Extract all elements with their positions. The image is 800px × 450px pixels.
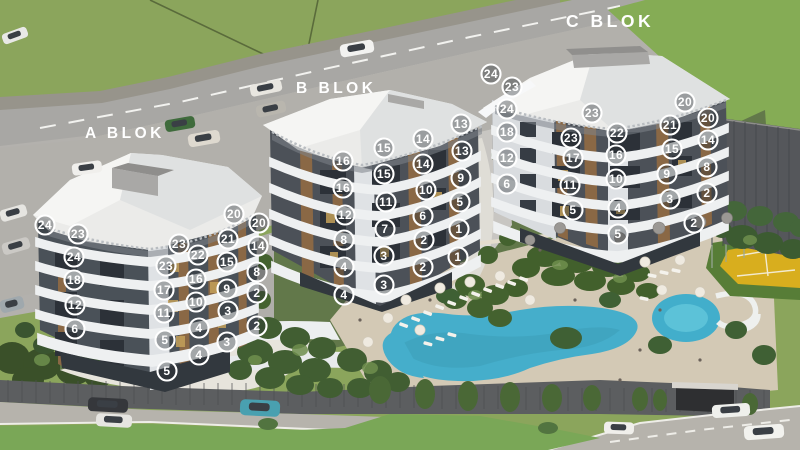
svg-text:15: 15 xyxy=(220,255,234,269)
svg-text:23: 23 xyxy=(585,106,599,120)
svg-text:23: 23 xyxy=(564,131,578,145)
svg-text:16: 16 xyxy=(336,154,350,168)
svg-text:13: 13 xyxy=(455,144,469,158)
svg-text:2: 2 xyxy=(690,216,697,230)
svg-text:17: 17 xyxy=(566,151,580,165)
svg-text:5: 5 xyxy=(614,227,621,241)
svg-text:4: 4 xyxy=(195,348,202,362)
svg-text:4: 4 xyxy=(614,201,621,215)
svg-text:14: 14 xyxy=(251,239,265,253)
svg-text:2: 2 xyxy=(253,319,260,333)
svg-text:18: 18 xyxy=(67,273,81,287)
svg-text:15: 15 xyxy=(665,142,679,156)
svg-text:13: 13 xyxy=(454,117,468,131)
svg-text:9: 9 xyxy=(663,167,670,181)
svg-text:20: 20 xyxy=(701,111,715,125)
svg-text:6: 6 xyxy=(503,177,510,191)
svg-text:18: 18 xyxy=(500,125,514,139)
svg-text:22: 22 xyxy=(610,126,624,140)
svg-text:12: 12 xyxy=(338,208,352,222)
svg-text:16: 16 xyxy=(336,181,350,195)
svg-text:6: 6 xyxy=(419,209,426,223)
svg-text:24: 24 xyxy=(500,102,514,116)
svg-text:5: 5 xyxy=(163,364,170,378)
svg-text:3: 3 xyxy=(223,335,230,349)
svg-text:11: 11 xyxy=(563,178,577,192)
svg-text:4: 4 xyxy=(340,288,347,302)
svg-text:8: 8 xyxy=(253,265,260,279)
svg-text:15: 15 xyxy=(377,167,391,181)
svg-text:6: 6 xyxy=(71,322,78,336)
svg-text:12: 12 xyxy=(500,151,514,165)
svg-text:20: 20 xyxy=(252,216,266,230)
svg-text:24: 24 xyxy=(67,250,81,264)
svg-text:7: 7 xyxy=(381,222,388,236)
svg-text:20: 20 xyxy=(678,95,692,109)
svg-text:11: 11 xyxy=(157,306,171,320)
svg-text:10: 10 xyxy=(189,295,203,309)
svg-text:21: 21 xyxy=(663,118,677,132)
svg-text:5: 5 xyxy=(456,195,463,209)
svg-text:A BLOK: A BLOK xyxy=(85,125,165,142)
svg-text:2: 2 xyxy=(703,186,710,200)
svg-text:23: 23 xyxy=(71,227,85,241)
svg-text:14: 14 xyxy=(416,157,430,171)
svg-text:4: 4 xyxy=(340,260,347,274)
svg-text:21: 21 xyxy=(221,232,235,246)
svg-text:C BLOK: C BLOK xyxy=(566,11,654,31)
svg-text:23: 23 xyxy=(159,259,173,273)
svg-text:24: 24 xyxy=(484,67,498,81)
svg-text:4: 4 xyxy=(195,321,202,335)
svg-text:15: 15 xyxy=(377,141,391,155)
svg-text:22: 22 xyxy=(191,248,205,262)
svg-text:3: 3 xyxy=(380,249,387,263)
svg-text:3: 3 xyxy=(666,192,673,206)
svg-text:16: 16 xyxy=(609,148,623,162)
svg-text:24: 24 xyxy=(38,218,52,232)
svg-text:2: 2 xyxy=(253,286,260,300)
svg-text:12: 12 xyxy=(68,298,82,312)
svg-text:10: 10 xyxy=(609,172,623,186)
svg-text:2: 2 xyxy=(420,233,427,247)
svg-text:1: 1 xyxy=(454,250,461,264)
svg-text:16: 16 xyxy=(189,272,203,286)
svg-text:14: 14 xyxy=(701,133,715,147)
svg-text:9: 9 xyxy=(223,282,230,296)
svg-text:23: 23 xyxy=(172,237,186,251)
svg-text:23: 23 xyxy=(505,80,519,94)
svg-text:10: 10 xyxy=(419,183,433,197)
svg-text:3: 3 xyxy=(224,304,231,318)
svg-text:3: 3 xyxy=(380,278,387,292)
svg-text:5: 5 xyxy=(569,203,576,217)
svg-text:8: 8 xyxy=(340,233,347,247)
svg-text:1: 1 xyxy=(455,222,462,236)
svg-text:17: 17 xyxy=(157,283,171,297)
svg-text:B BLOK: B BLOK xyxy=(296,80,376,97)
svg-text:2: 2 xyxy=(419,260,426,274)
svg-text:14: 14 xyxy=(416,132,430,146)
svg-text:11: 11 xyxy=(379,195,393,209)
svg-text:5: 5 xyxy=(161,333,168,347)
svg-text:8: 8 xyxy=(703,160,710,174)
svg-text:9: 9 xyxy=(457,171,464,185)
svg-text:20: 20 xyxy=(227,207,241,221)
